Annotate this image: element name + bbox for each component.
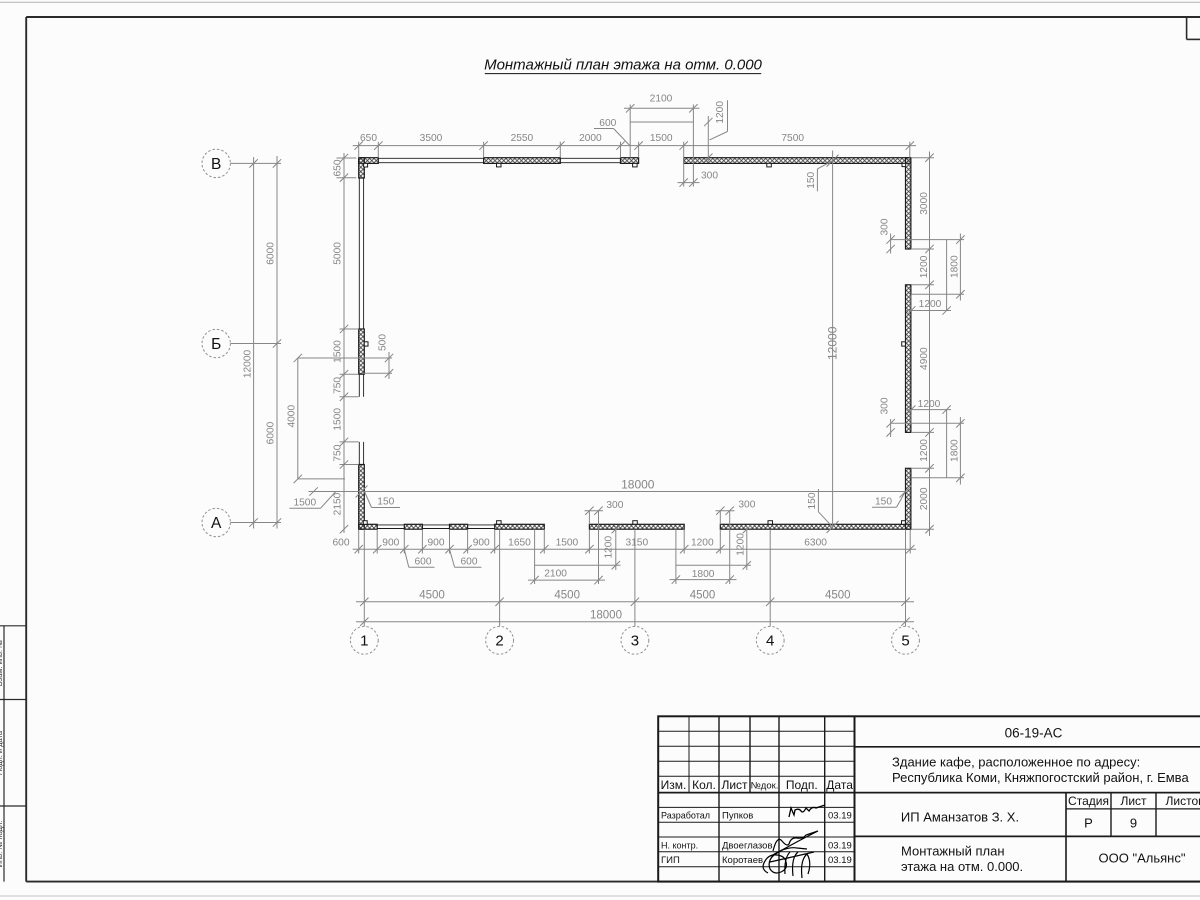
svg-text:300: 300 xyxy=(701,170,718,181)
svg-text:В: В xyxy=(211,156,221,173)
svg-text:1200: 1200 xyxy=(691,538,714,549)
svg-text:Изм.: Изм. xyxy=(661,778,687,792)
svg-text:ООО "Альянс": ООО "Альянс" xyxy=(1099,851,1186,866)
svg-text:18000: 18000 xyxy=(590,610,622,622)
svg-text:ГИП: ГИП xyxy=(661,855,680,866)
svg-text:Н. контр.: Н. контр. xyxy=(661,840,698,850)
svg-text:4500: 4500 xyxy=(690,589,716,601)
svg-text:1500: 1500 xyxy=(556,538,579,549)
svg-text:2000: 2000 xyxy=(579,133,602,144)
svg-text:650: 650 xyxy=(360,133,377,144)
svg-text:900: 900 xyxy=(382,538,399,549)
svg-text:№док.: №док. xyxy=(751,780,779,791)
svg-text:1800: 1800 xyxy=(949,255,960,278)
svg-text:06-19-AC: 06-19-AC xyxy=(1005,725,1063,740)
svg-text:Листов: Листов xyxy=(1166,794,1200,808)
svg-text:2100: 2100 xyxy=(650,94,673,105)
svg-text:Коротаев: Коротаев xyxy=(722,855,763,866)
svg-text:Здание кафе, расположенное по: Здание кафе, расположенное по адресу: xyxy=(892,755,1140,770)
svg-text:Монтажный план: Монтажный план xyxy=(901,844,1005,859)
svg-text:5: 5 xyxy=(901,632,909,649)
svg-text:600: 600 xyxy=(461,557,478,568)
svg-text:Монтажный план этажа на отм. 0: Монтажный план этажа на отм. 0.000 xyxy=(484,57,762,74)
svg-text:Взам. инв. №: Взам. инв. № xyxy=(0,640,4,686)
svg-text:500: 500 xyxy=(378,334,389,351)
svg-text:12000: 12000 xyxy=(242,350,253,379)
svg-text:А: А xyxy=(211,515,222,532)
svg-text:Республика Коми, Княжпогостски: Республика Коми, Княжпогостский район, г… xyxy=(892,770,1189,785)
svg-text:3000: 3000 xyxy=(919,192,930,215)
svg-text:300: 300 xyxy=(880,218,891,235)
svg-text:2550: 2550 xyxy=(511,133,534,144)
svg-text:1: 1 xyxy=(360,632,368,649)
svg-text:4900: 4900 xyxy=(919,347,930,370)
svg-text:6000: 6000 xyxy=(265,242,276,265)
svg-text:Разработал: Разработал xyxy=(661,811,710,821)
svg-text:900: 900 xyxy=(428,538,445,549)
svg-text:1200: 1200 xyxy=(603,536,614,559)
svg-text:18000: 18000 xyxy=(621,478,655,492)
svg-text:2100: 2100 xyxy=(544,569,567,580)
svg-text:Пупков: Пупков xyxy=(722,811,753,822)
svg-text:150: 150 xyxy=(807,492,818,509)
svg-text:150: 150 xyxy=(806,171,817,188)
svg-text:ИП Аманзатов З. Х.: ИП Аманзатов З. Х. xyxy=(901,810,1019,825)
svg-text:600: 600 xyxy=(333,538,350,549)
svg-text:этажа на отм. 0.000.: этажа на отм. 0.000. xyxy=(901,859,1023,874)
svg-text:750: 750 xyxy=(332,444,343,461)
svg-text:Подп. и дата: Подп. и дата xyxy=(0,730,4,775)
svg-text:Стадия: Стадия xyxy=(1068,794,1109,808)
svg-text:4: 4 xyxy=(766,632,774,649)
svg-text:2000: 2000 xyxy=(919,487,930,510)
svg-text:1500: 1500 xyxy=(332,408,343,431)
svg-text:1200: 1200 xyxy=(919,299,942,310)
svg-text:4500: 4500 xyxy=(419,589,445,601)
svg-text:Лист: Лист xyxy=(721,778,748,792)
svg-text:3: 3 xyxy=(631,632,639,649)
svg-text:1500: 1500 xyxy=(650,133,673,144)
svg-text:Подп.: Подп. xyxy=(786,778,818,792)
svg-text:650: 650 xyxy=(332,159,343,176)
svg-text:4000: 4000 xyxy=(287,405,298,428)
svg-text:1200: 1200 xyxy=(918,399,941,410)
svg-text:5000: 5000 xyxy=(332,242,343,265)
svg-text:1200: 1200 xyxy=(715,101,726,124)
svg-text:750: 750 xyxy=(332,377,343,394)
svg-text:9: 9 xyxy=(1130,815,1137,830)
svg-text:03.19: 03.19 xyxy=(828,840,852,851)
svg-text:Р: Р xyxy=(1084,815,1093,830)
svg-text:6000: 6000 xyxy=(265,421,276,444)
svg-text:1500: 1500 xyxy=(332,340,343,363)
svg-text:6300: 6300 xyxy=(804,538,827,549)
svg-text:12000: 12000 xyxy=(826,326,840,360)
svg-text:150: 150 xyxy=(875,496,892,507)
svg-text:3150: 3150 xyxy=(625,538,648,549)
svg-text:03.19: 03.19 xyxy=(828,811,852,822)
svg-text:Дата: Дата xyxy=(826,778,853,792)
svg-text:2: 2 xyxy=(495,632,503,649)
svg-text:600: 600 xyxy=(415,557,432,568)
svg-text:Инв. № подл.: Инв. № подл. xyxy=(0,821,4,868)
svg-text:1800: 1800 xyxy=(949,439,960,462)
svg-text:03.19: 03.19 xyxy=(828,855,852,866)
svg-text:7500: 7500 xyxy=(781,133,804,144)
svg-text:Б: Б xyxy=(211,336,221,353)
svg-text:300: 300 xyxy=(606,500,623,511)
svg-text:600: 600 xyxy=(599,118,616,129)
svg-text:1200: 1200 xyxy=(919,255,930,278)
svg-text:300: 300 xyxy=(880,397,891,414)
svg-text:1500: 1500 xyxy=(293,497,316,508)
svg-text:Лист: Лист xyxy=(1120,794,1147,808)
svg-text:2150: 2150 xyxy=(332,492,343,515)
svg-text:Кол.: Кол. xyxy=(692,778,716,792)
svg-text:1200: 1200 xyxy=(735,533,746,556)
svg-text:3500: 3500 xyxy=(420,133,443,144)
svg-text:Двоеглазов: Двоеглазов xyxy=(722,840,773,851)
svg-text:300: 300 xyxy=(738,499,755,510)
svg-text:1800: 1800 xyxy=(692,569,715,580)
svg-text:900: 900 xyxy=(473,538,490,549)
svg-text:1200: 1200 xyxy=(919,439,930,462)
svg-text:4500: 4500 xyxy=(825,589,851,601)
svg-text:150: 150 xyxy=(377,496,394,507)
svg-text:1650: 1650 xyxy=(508,538,531,549)
svg-text:4500: 4500 xyxy=(554,589,580,601)
